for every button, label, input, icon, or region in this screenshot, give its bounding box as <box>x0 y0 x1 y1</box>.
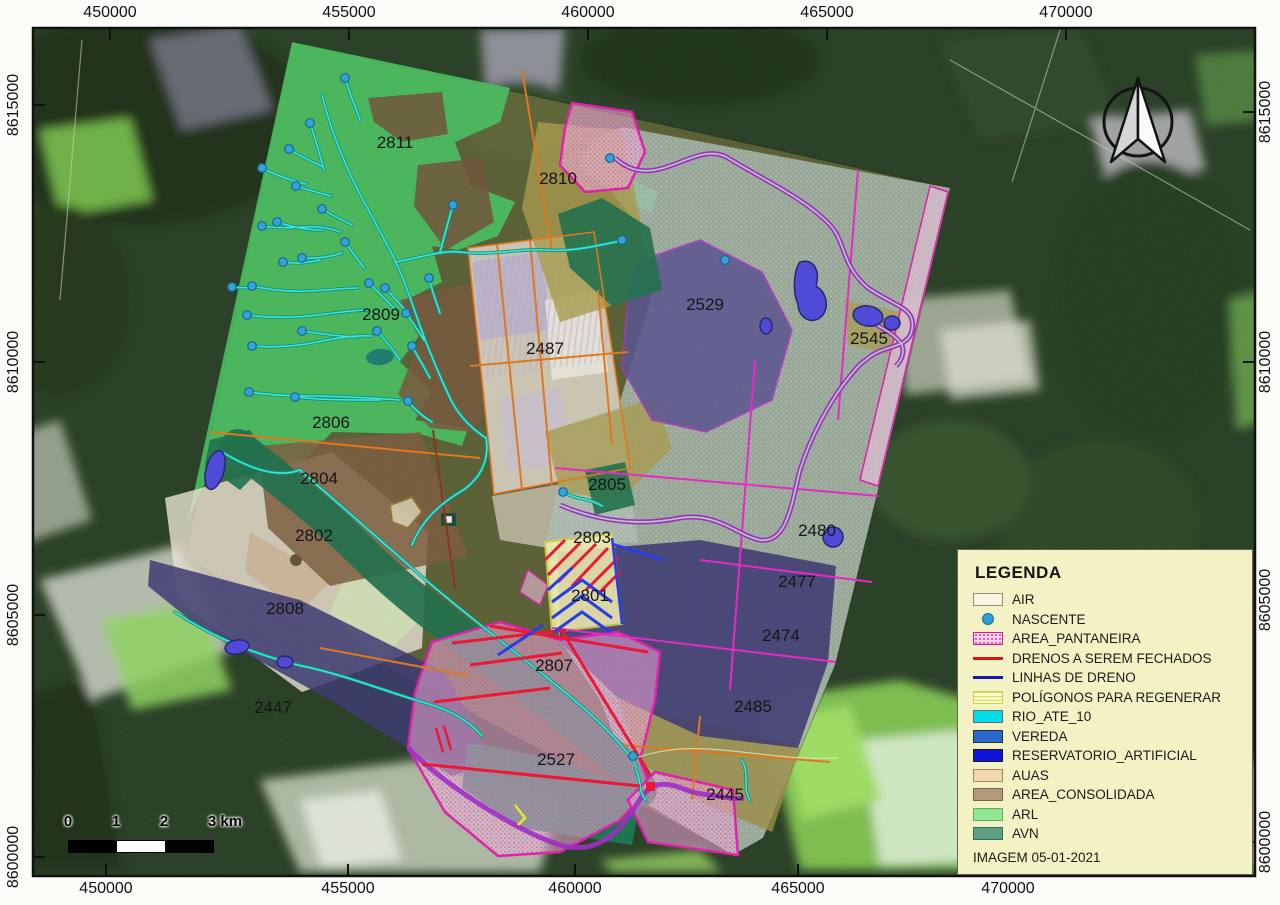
parcel-label: 2529 <box>686 295 724 314</box>
legend-swatch-avn <box>973 827 1003 840</box>
grid-coordinate-label: 8605000 <box>1257 569 1275 631</box>
scale-bar-label: 1 <box>112 813 120 830</box>
parcel-label: 2808 <box>266 599 304 618</box>
scale-bar <box>68 840 214 853</box>
legend-item: AIR <box>958 590 1252 610</box>
legend-box: LEGENDA AIRNASCENTEAREA_PANTANEIRADRENOS… <box>957 549 1253 875</box>
parcel-label: 2807 <box>535 656 573 675</box>
legend-item-label: VEREDA <box>1012 729 1068 744</box>
legend-item: AVN <box>958 824 1252 844</box>
grid-coordinate-label: 8600000 <box>1257 811 1275 873</box>
legend-swatch-area-pantaneira <box>973 632 1003 645</box>
grid-coordinate-label: 455000 <box>322 4 375 22</box>
grid-coordinate-label: 8605000 <box>5 584 23 646</box>
grid-coordinate-label: 460000 <box>548 880 601 898</box>
legend-item-label: AREA_PANTANEIRA <box>1012 631 1141 646</box>
legend-item: NASCENTE <box>958 610 1252 630</box>
legend-item: ARL <box>958 805 1252 825</box>
grid-coordinate-label: 8610000 <box>5 331 23 393</box>
legend-item: AREA_PANTANEIRA <box>958 629 1252 649</box>
legend-swatch-nascente <box>973 613 1003 626</box>
grid-coordinate-label: 465000 <box>771 880 824 898</box>
legend-title: LEGENDA <box>975 563 1252 583</box>
legend-item-label: ARL <box>1012 807 1038 822</box>
parcel-label: 2527 <box>537 750 575 769</box>
legend-item-label: RIO_ATE_10 <box>1012 709 1091 724</box>
scale-bar-label: 3 km <box>208 813 242 830</box>
legend-swatch-drenos-a-serem-fechados <box>973 652 1003 665</box>
parcel-label: 2487 <box>526 339 564 358</box>
grid-coordinate-label: 8615000 <box>1257 81 1275 143</box>
legend-item: LINHAS DE DRENO <box>958 668 1252 688</box>
legend-swatch-area-consolidada <box>973 788 1003 801</box>
legend-item-label: AUAS <box>1012 768 1049 783</box>
grid-coordinate-label: 470000 <box>1039 4 1092 22</box>
parcel-label: 2474 <box>762 626 800 645</box>
parcel-label: 2485 <box>734 697 772 716</box>
parcel-label: 2447 <box>254 698 292 717</box>
legend-swatch-vereda <box>973 730 1003 743</box>
legend-item-label: AVN <box>1012 826 1039 841</box>
parcel-label: 2803 <box>573 528 611 547</box>
grid-coordinate-label: 455000 <box>321 880 374 898</box>
parcel-label: 2809 <box>362 305 400 324</box>
legend-footer: IMAGEM 05-01-2021 <box>973 850 1252 865</box>
parcel-label: 2802 <box>295 526 333 545</box>
parcel-label: 2811 <box>377 133 414 152</box>
map-layout: 2811281028092487252925452806280428052802… <box>0 0 1280 905</box>
legend-swatch-auas <box>973 769 1003 782</box>
legend-swatch-air <box>973 593 1003 606</box>
legend-item: POLÍGONOS PARA REGENERAR <box>958 688 1252 708</box>
grid-coordinate-label: 460000 <box>561 4 614 22</box>
legend-swatch-rio-ate-10 <box>973 710 1003 723</box>
parcel-label: 2477 <box>778 572 816 591</box>
grid-coordinate-label: 8615000 <box>5 74 23 136</box>
legend-item: VEREDA <box>958 727 1252 747</box>
legend-item-label: LINHAS DE DRENO <box>1012 670 1136 685</box>
parcel-label: 2801 <box>571 586 609 605</box>
legend-item-label: DRENOS A SEREM FECHADOS <box>1012 651 1212 666</box>
legend-swatch-arl <box>973 808 1003 821</box>
legend-item-label: POLÍGONOS PARA REGENERAR <box>1012 690 1221 705</box>
legend-item: DRENOS A SEREM FECHADOS <box>958 649 1252 669</box>
legend-item-label: RESERVATORIO_ARTIFICIAL <box>1012 748 1197 763</box>
legend-item-label: AREA_CONSOLIDADA <box>1012 787 1155 802</box>
parcel-label: 2804 <box>300 469 338 488</box>
legend-swatch-linhas-de-dreno <box>973 671 1003 684</box>
grid-coordinate-label: 8600000 <box>5 826 23 888</box>
parcel-label: 2480 <box>798 521 836 540</box>
scale-bar-label: 0 <box>64 813 72 830</box>
grid-coordinate-label: 470000 <box>981 880 1034 898</box>
grid-coordinate-label: 8610000 <box>1257 331 1275 393</box>
legend-items: AIRNASCENTEAREA_PANTANEIRADRENOS A SEREM… <box>958 590 1252 844</box>
legend-item: AREA_CONSOLIDADA <box>958 785 1252 805</box>
legend-item: RIO_ATE_10 <box>958 707 1252 727</box>
parcel-label: 2445 <box>706 785 744 804</box>
grid-coordinate-label: 465000 <box>800 4 853 22</box>
legend-item: RESERVATORIO_ARTIFICIAL <box>958 746 1252 766</box>
grid-coordinate-label: 450000 <box>83 4 136 22</box>
parcel-label: 2805 <box>588 475 626 494</box>
scale-bar-label: 2 <box>160 813 168 830</box>
legend-item: AUAS <box>958 766 1252 786</box>
grid-coordinate-label: 450000 <box>79 880 132 898</box>
legend-swatch-reservatorio-artificial <box>973 749 1003 762</box>
legend-swatch-pol-gonos-para-regenerar <box>973 691 1003 704</box>
legend-item-label: NASCENTE <box>1012 612 1086 627</box>
parcel-label: 2545 <box>850 329 888 348</box>
parcel-label: 2810 <box>539 169 577 188</box>
parcel-label: 2806 <box>312 413 350 432</box>
legend-item-label: AIR <box>1012 592 1035 607</box>
north-arrow <box>1098 74 1178 168</box>
